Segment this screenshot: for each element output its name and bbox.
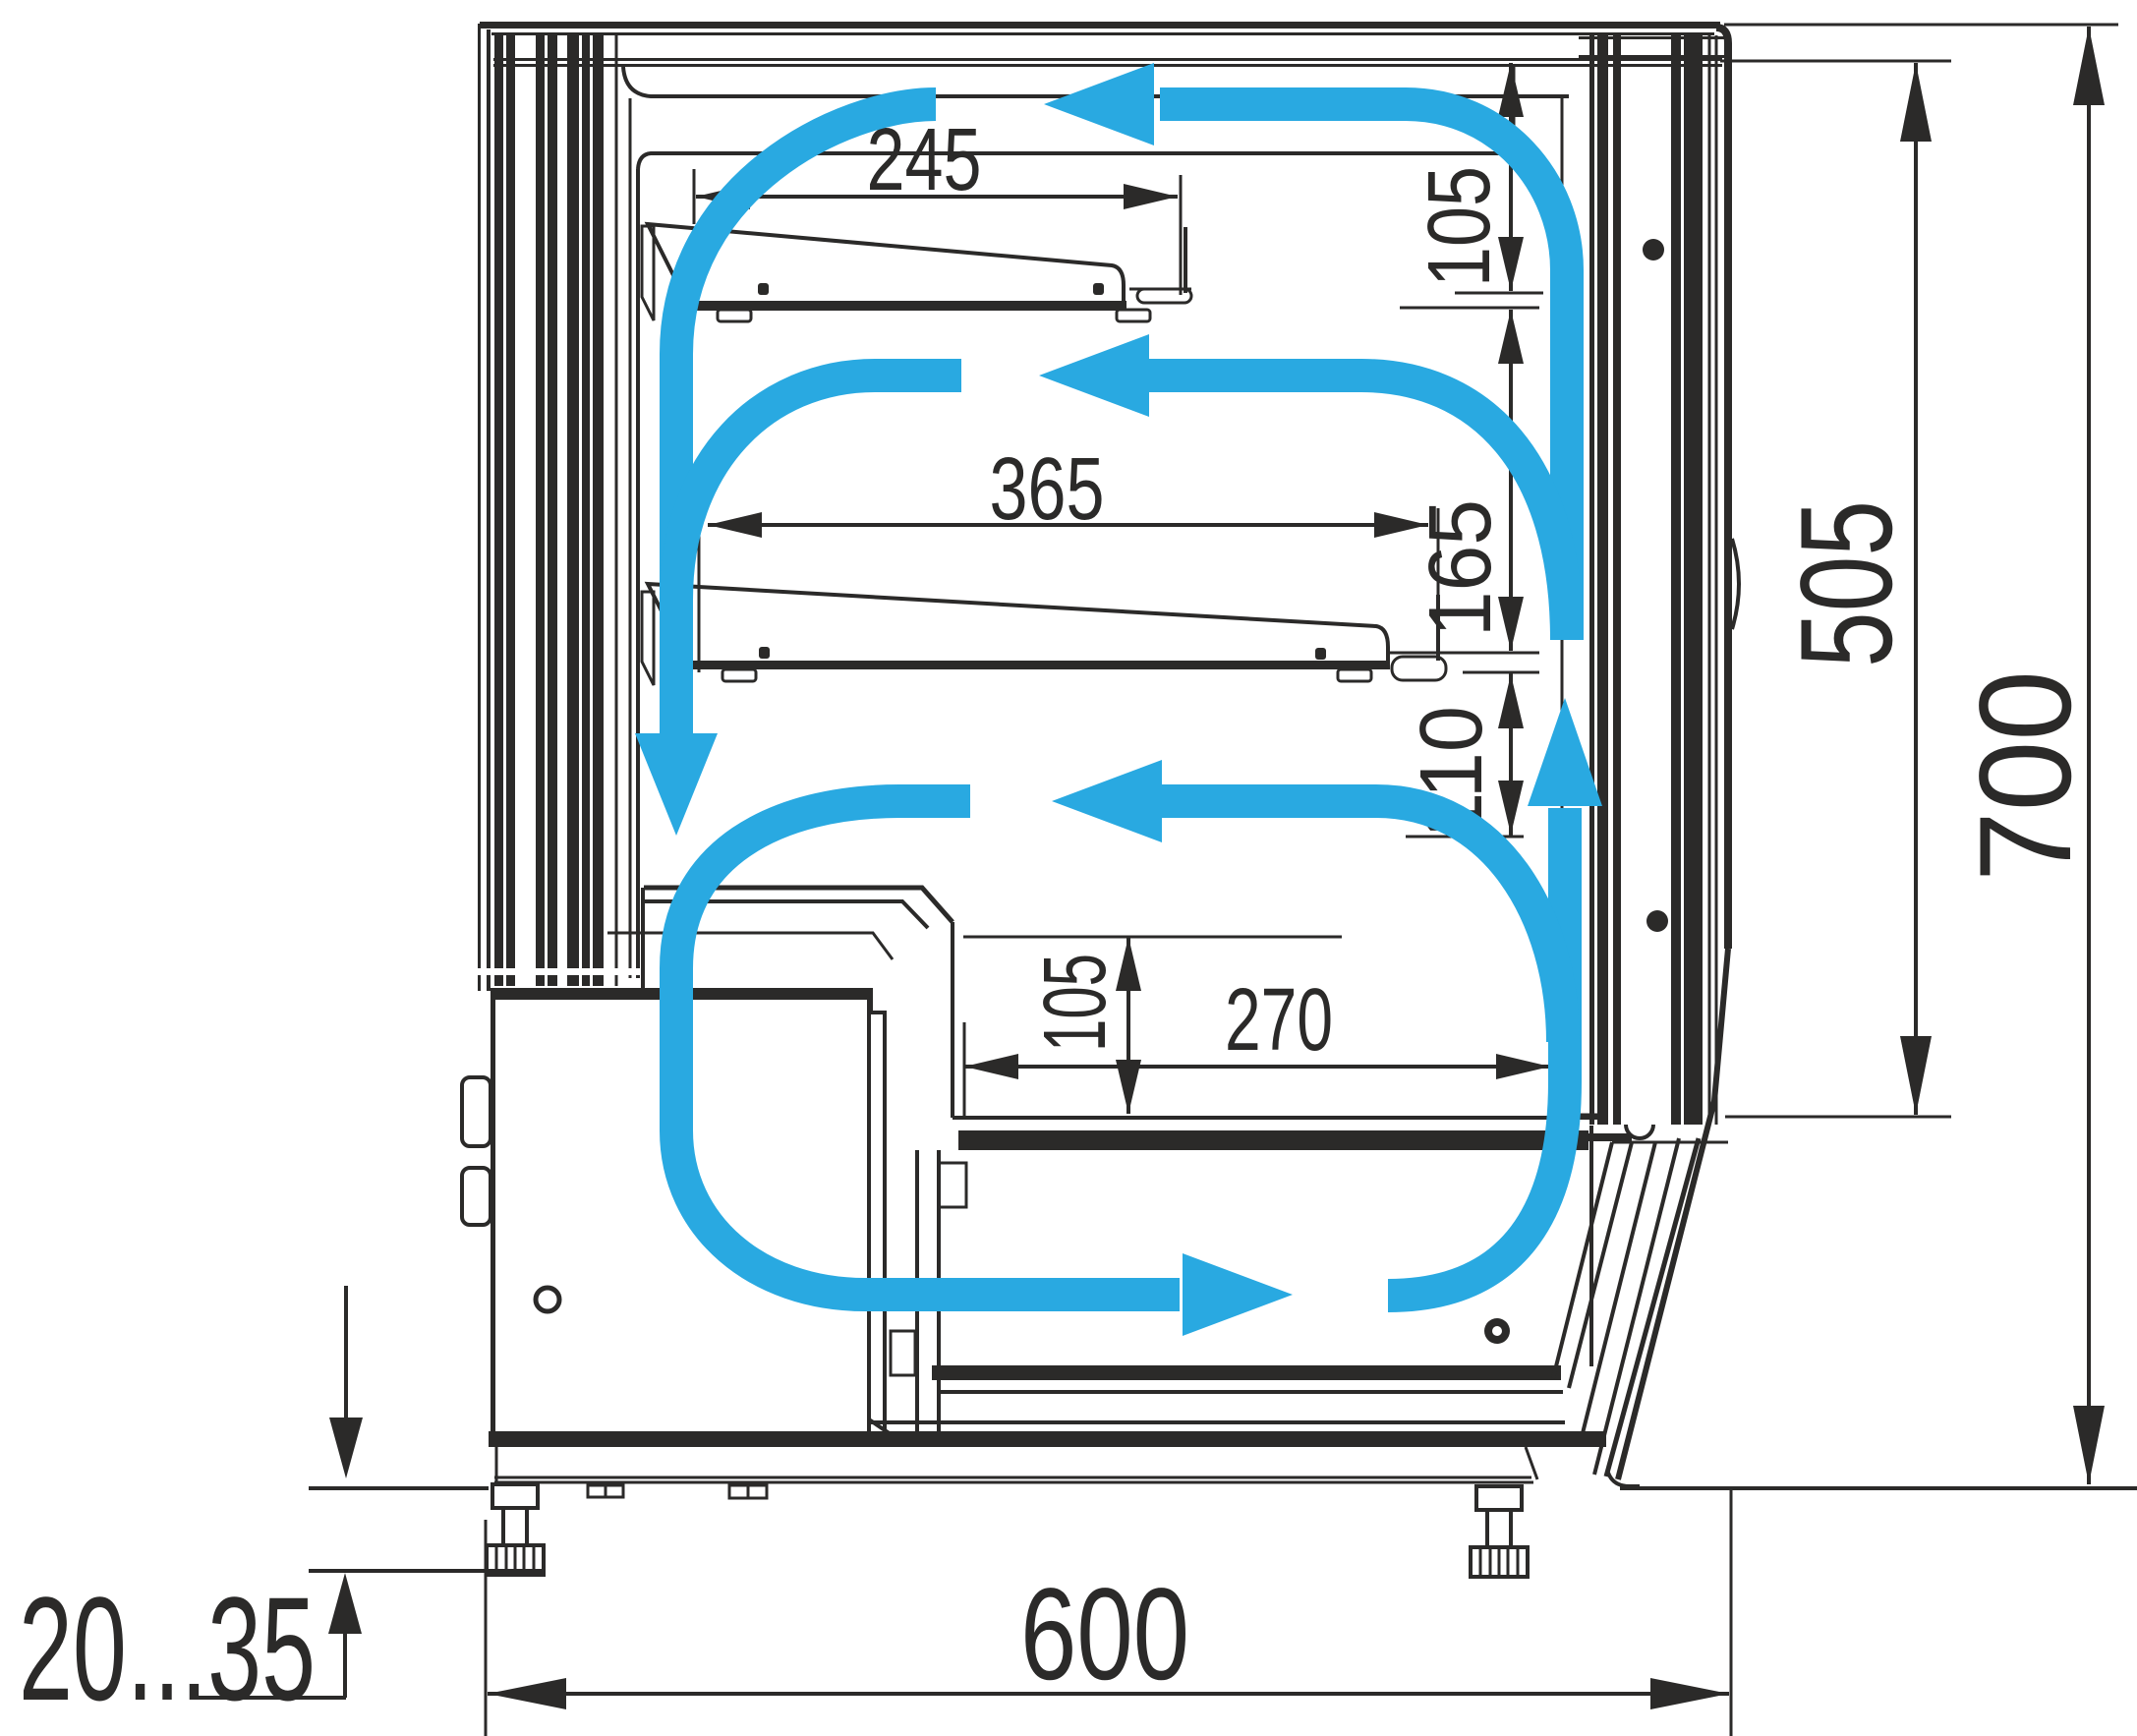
svg-text:700: 700 bbox=[1953, 670, 2099, 882]
svg-text:505: 505 bbox=[1774, 500, 1920, 667]
svg-text:105: 105 bbox=[1411, 166, 1509, 287]
svg-text:20...35: 20...35 bbox=[19, 1566, 316, 1731]
svg-text:105: 105 bbox=[1026, 954, 1125, 1052]
svg-text:270: 270 bbox=[1225, 971, 1333, 1070]
svg-text:365: 365 bbox=[990, 440, 1105, 539]
svg-text:165: 165 bbox=[1412, 499, 1510, 637]
svg-text:600: 600 bbox=[1020, 1562, 1189, 1707]
